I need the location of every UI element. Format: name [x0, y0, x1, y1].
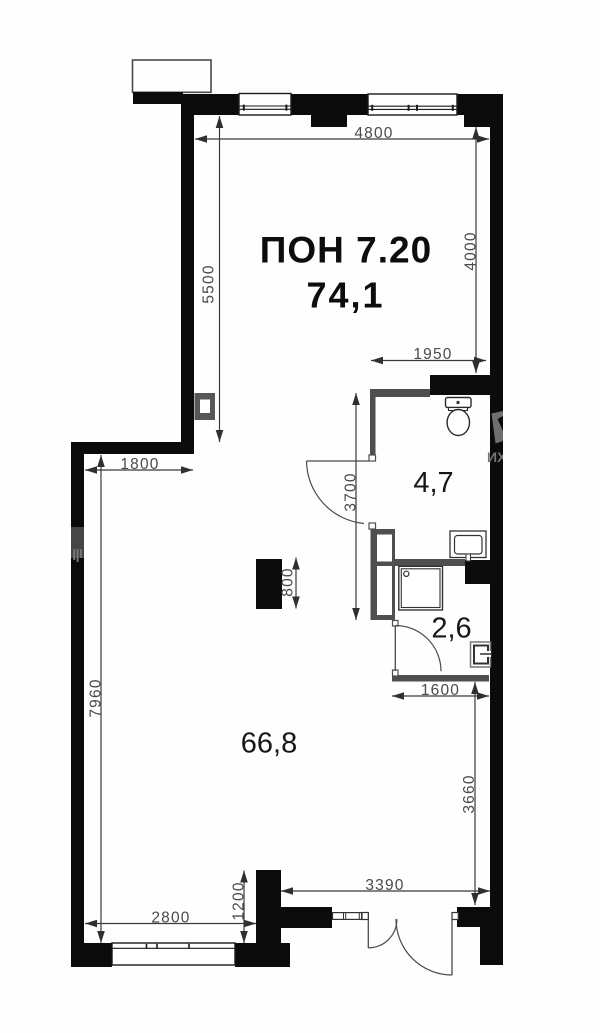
svg-text:1950: 1950 — [413, 346, 452, 363]
svg-text:4000: 4000 — [463, 231, 480, 270]
svg-text:7960: 7960 — [88, 678, 105, 717]
svg-text:3660: 3660 — [461, 774, 478, 813]
svg-text:74,1: 74,1 — [306, 275, 384, 316]
svg-text:4800: 4800 — [354, 125, 393, 142]
svg-text:5500: 5500 — [201, 264, 218, 303]
svg-text:ПОН 7.20: ПОН 7.20 — [260, 230, 432, 271]
svg-text:1200: 1200 — [231, 881, 248, 920]
svg-text:2800: 2800 — [151, 910, 190, 927]
svg-text:4,7: 4,7 — [413, 467, 453, 499]
svg-text:1600: 1600 — [421, 682, 460, 699]
svg-text:1800: 1800 — [120, 456, 159, 473]
svg-text:2,6: 2,6 — [431, 613, 471, 645]
svg-text:800: 800 — [280, 567, 297, 596]
svg-text:3700: 3700 — [343, 472, 360, 511]
svg-text:66,8: 66,8 — [241, 728, 297, 760]
svg-text:3390: 3390 — [365, 877, 404, 894]
